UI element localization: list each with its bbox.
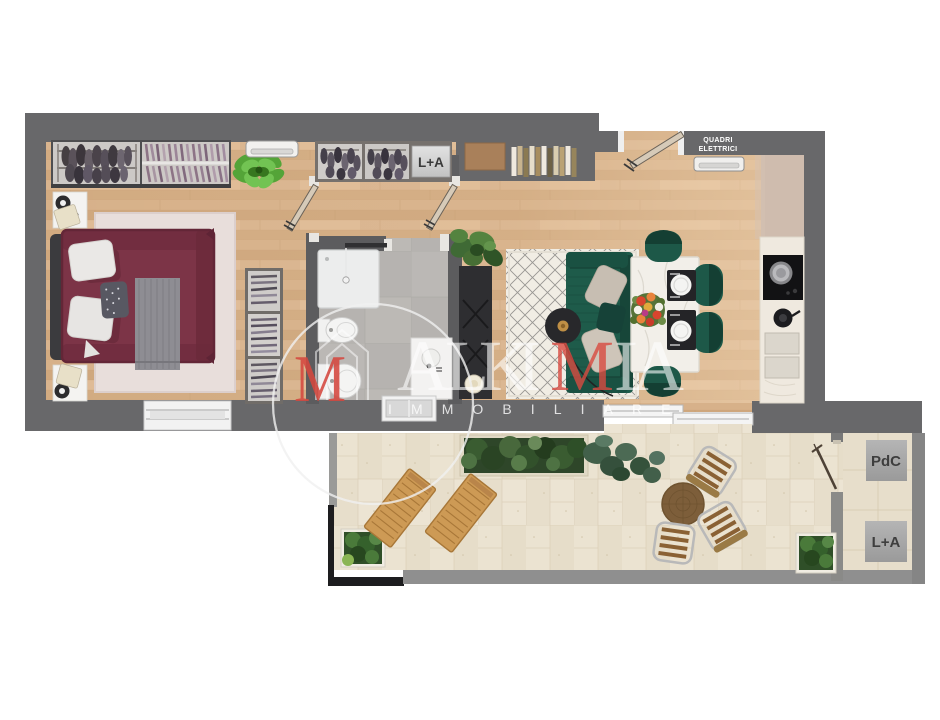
- svg-text:A: A: [632, 326, 684, 406]
- svg-text:M: M: [550, 326, 614, 406]
- svg-text:PdC: PdC: [871, 453, 901, 470]
- svg-text:A: A: [397, 326, 449, 406]
- svg-text:IMMOBILIARE: IMMOBILIARE: [388, 401, 690, 417]
- svg-text:QUADRI: QUADRI: [703, 137, 732, 144]
- svg-text:L+A: L+A: [418, 155, 444, 170]
- svg-text:I: I: [517, 326, 541, 406]
- svg-text:L+A: L+A: [872, 534, 901, 551]
- svg-text:M: M: [294, 342, 346, 416]
- svg-text:ELETTRICI: ELETTRICI: [699, 146, 738, 153]
